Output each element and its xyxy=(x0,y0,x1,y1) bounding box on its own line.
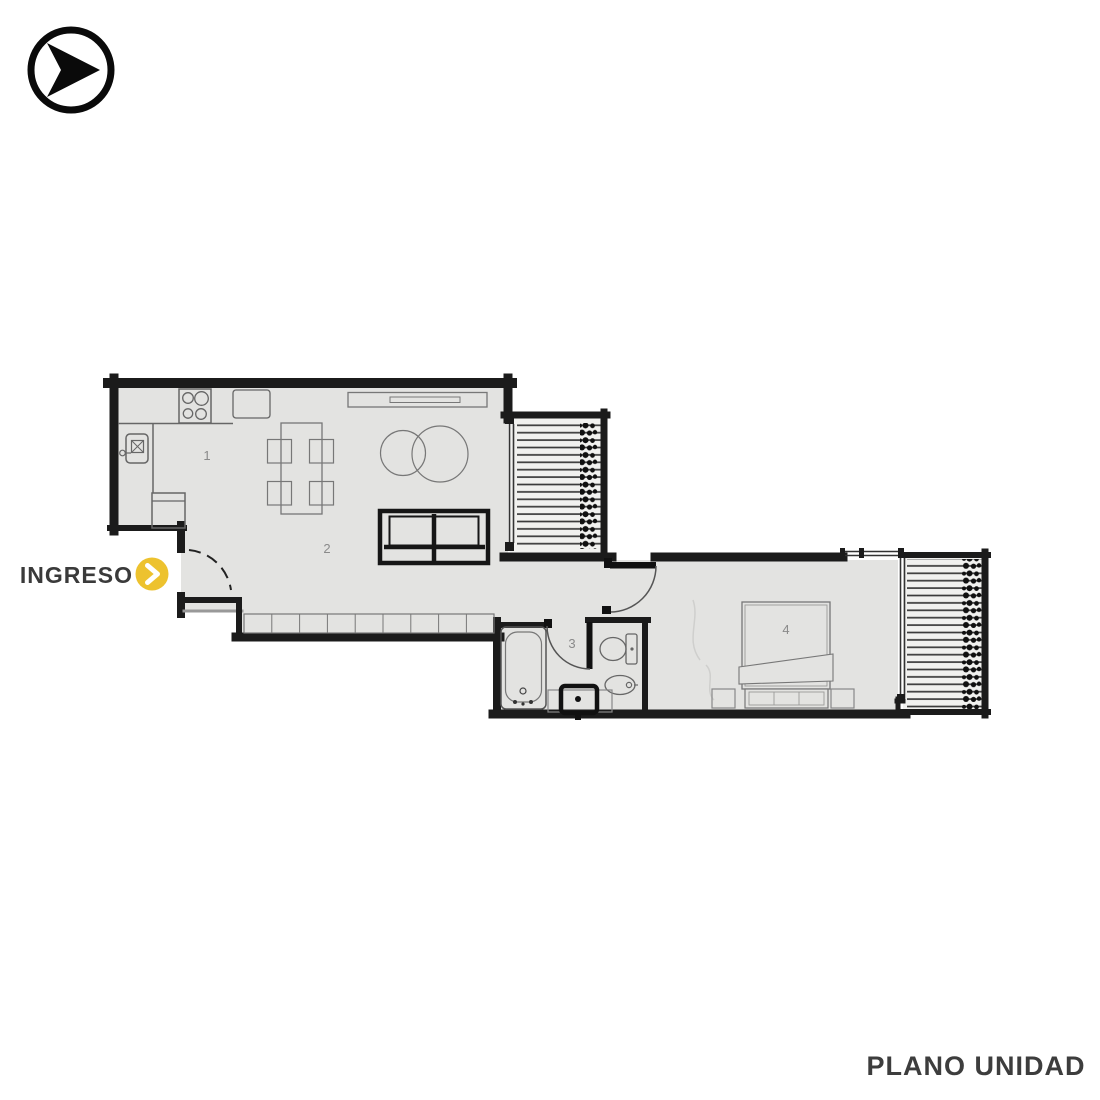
window-tick xyxy=(505,542,514,551)
planter-icon xyxy=(960,559,982,710)
door-hinge xyxy=(544,619,552,628)
window-tick xyxy=(505,415,514,424)
door-stub xyxy=(602,606,611,614)
floor-plan: 1 2 3 4 xyxy=(108,378,988,720)
window-tick xyxy=(840,548,845,558)
entry-label: INGRESO xyxy=(20,562,133,588)
page-title: PLANO UNIDAD xyxy=(867,1051,1086,1081)
room-3-label: 3 xyxy=(568,636,575,651)
bedroom-suite-door-leaf xyxy=(610,562,656,569)
living-kitchen-floor xyxy=(118,384,508,633)
plano-unidad-canvas: 1 2 3 4 INGRESO PLANO UNIDAD xyxy=(0,0,1100,1100)
logo xyxy=(31,30,111,110)
window-tick xyxy=(897,694,905,702)
room-4-label: 4 xyxy=(782,622,789,637)
entry-indicator: INGRESO xyxy=(20,558,169,591)
room-1-label: 1 xyxy=(203,448,210,463)
window-tick xyxy=(859,548,864,558)
balcony-bedroom xyxy=(903,556,985,712)
balcony-upper xyxy=(510,417,604,552)
planter-icon xyxy=(580,423,602,549)
window-tick xyxy=(898,548,904,558)
room-2-label: 2 xyxy=(323,541,330,556)
bathroom-door-leaf xyxy=(587,622,593,669)
entry-arrow-badge xyxy=(136,558,169,591)
